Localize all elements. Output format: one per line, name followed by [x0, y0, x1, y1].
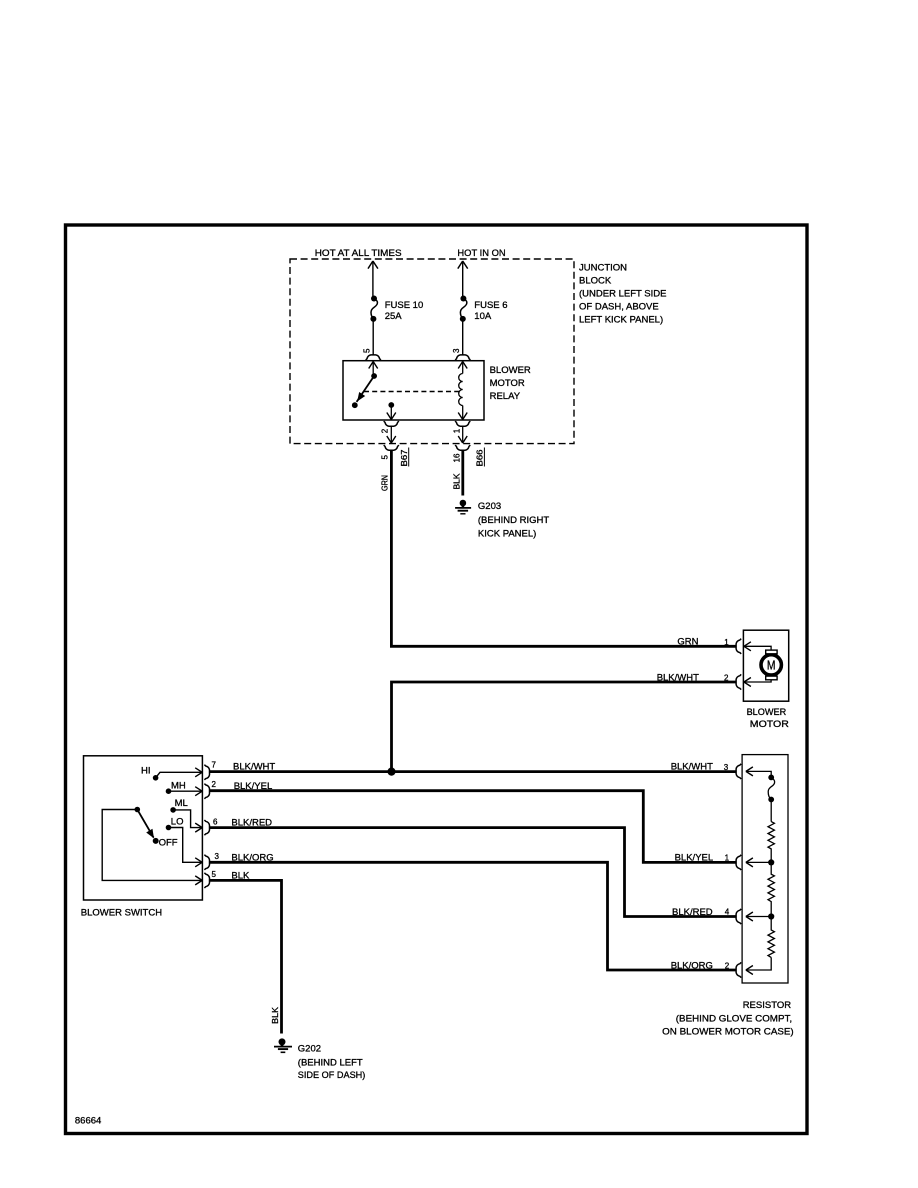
svg-text:HI: HI — [141, 766, 151, 777]
svg-text:10A: 10A — [474, 311, 492, 322]
svg-text:BLK/YEL: BLK/YEL — [675, 853, 714, 864]
svg-text:B66: B66 — [476, 449, 485, 467]
svg-text:BLOWER SWITCH: BLOWER SWITCH — [81, 908, 162, 919]
svg-text:1: 1 — [725, 853, 730, 862]
svg-text:2: 2 — [725, 961, 730, 970]
svg-text:(BEHIND GLOVE COMPT,: (BEHIND GLOVE COMPT, — [676, 1014, 792, 1025]
svg-text:G202: G202 — [298, 1044, 321, 1055]
svg-text:JUNCTION: JUNCTION — [579, 262, 627, 273]
svg-text:4: 4 — [725, 908, 730, 917]
svg-text:5: 5 — [212, 870, 217, 879]
svg-text:HOT AT ALL TIMES: HOT AT ALL TIMES — [315, 248, 402, 259]
svg-text:LO: LO — [171, 817, 184, 828]
svg-text:KICK PANEL): KICK PANEL) — [478, 529, 536, 540]
svg-text:ON BLOWER MOTOR CASE): ON BLOWER MOTOR CASE) — [662, 1027, 794, 1038]
svg-text:16: 16 — [453, 453, 462, 462]
svg-text:G203: G203 — [478, 501, 501, 512]
svg-text:5: 5 — [363, 348, 372, 353]
svg-text:BLOCK: BLOCK — [579, 275, 612, 286]
svg-text:M: M — [767, 659, 776, 673]
svg-text:B67: B67 — [400, 449, 409, 467]
svg-text:GRN: GRN — [677, 637, 698, 648]
svg-text:BLK/ORG: BLK/ORG — [671, 961, 713, 972]
svg-text:1: 1 — [724, 638, 729, 647]
svg-text:3: 3 — [452, 348, 461, 353]
svg-text:(BEHIND LEFT: (BEHIND LEFT — [298, 1058, 363, 1069]
svg-text:BLK: BLK — [453, 473, 462, 490]
svg-text:BLK: BLK — [271, 1006, 280, 1024]
svg-text:ML: ML — [175, 798, 188, 809]
svg-text:SIDE OF DASH): SIDE OF DASH) — [298, 1070, 366, 1081]
svg-text:2: 2 — [212, 780, 217, 789]
svg-text:5: 5 — [381, 455, 390, 460]
svg-text:1: 1 — [453, 428, 462, 433]
svg-text:86664: 86664 — [75, 1116, 101, 1127]
svg-text:25A: 25A — [385, 311, 403, 322]
svg-text:2: 2 — [381, 428, 390, 433]
svg-text:OFF: OFF — [159, 837, 178, 848]
svg-text:MOTOR: MOTOR — [490, 378, 525, 389]
svg-text:7: 7 — [212, 761, 217, 770]
svg-text:RELAY: RELAY — [490, 391, 521, 402]
svg-text:BLK/WHT: BLK/WHT — [671, 762, 713, 773]
svg-text:(BEHIND RIGHT: (BEHIND RIGHT — [478, 515, 549, 526]
svg-text:BLK/RED: BLK/RED — [672, 907, 713, 918]
svg-text:BLOWER: BLOWER — [490, 365, 531, 376]
svg-text:MOTOR: MOTOR — [750, 719, 789, 730]
svg-text:FUSE 6: FUSE 6 — [474, 300, 507, 311]
svg-text:LEFT KICK PANEL): LEFT KICK PANEL) — [579, 314, 663, 325]
svg-text:OF DASH, ABOVE: OF DASH, ABOVE — [579, 301, 659, 312]
svg-text:FUSE 10: FUSE 10 — [385, 300, 424, 311]
svg-text:3: 3 — [215, 852, 220, 861]
svg-text:GRN: GRN — [381, 475, 390, 491]
svg-text:BLOWER: BLOWER — [747, 707, 787, 718]
svg-text:MH: MH — [171, 781, 186, 792]
svg-text:(UNDER LEFT SIDE: (UNDER LEFT SIDE — [579, 288, 666, 299]
svg-text:HOT IN ON: HOT IN ON — [457, 248, 505, 259]
svg-text:3: 3 — [724, 763, 729, 772]
svg-text:6: 6 — [213, 817, 218, 826]
svg-text:RESISTOR: RESISTOR — [743, 1000, 792, 1011]
